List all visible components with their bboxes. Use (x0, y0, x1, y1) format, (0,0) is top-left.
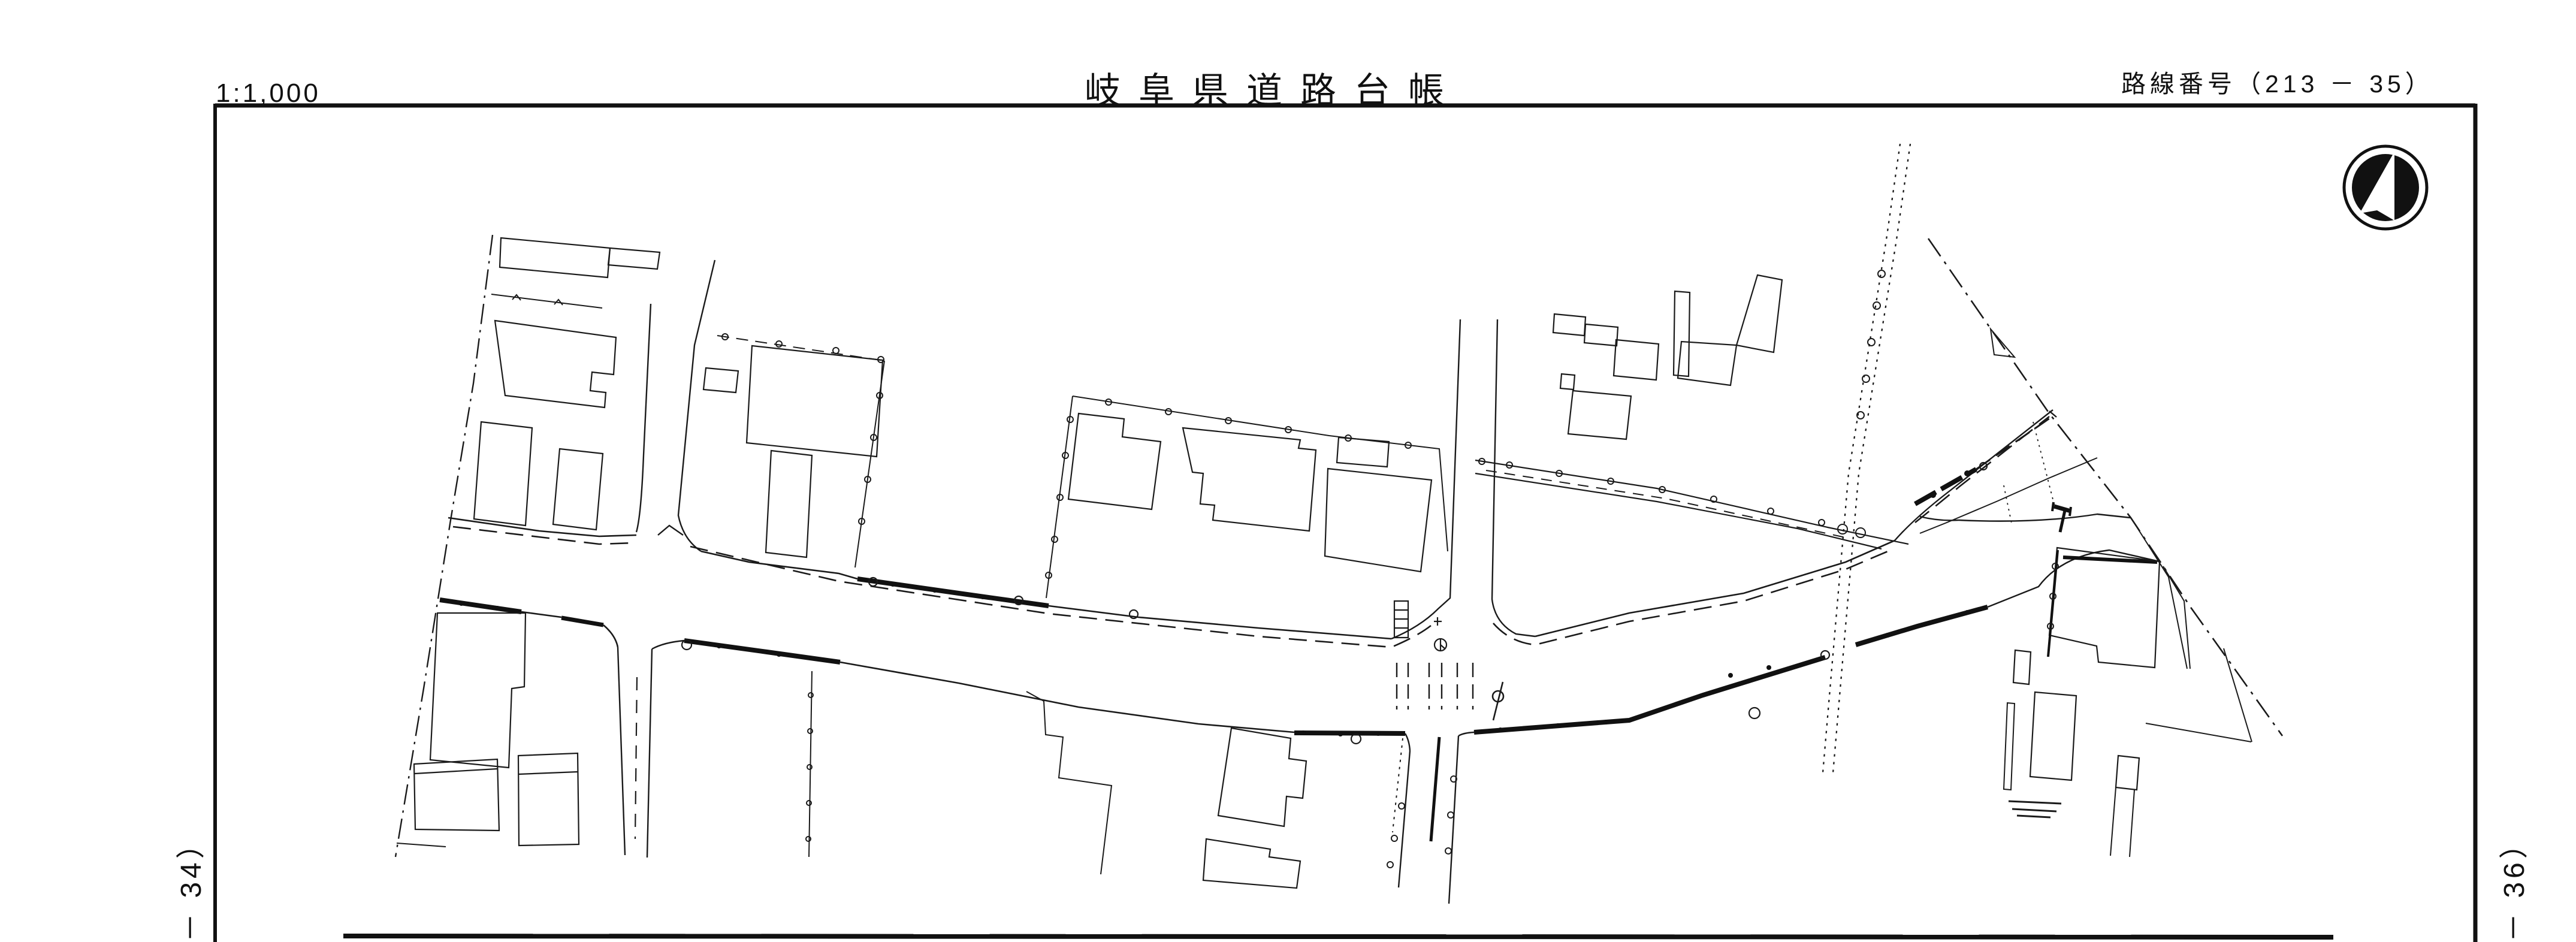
svg-text:－ 34）: － 34） (176, 826, 207, 942)
svg-text:－ 36）: － 36） (2499, 826, 2530, 942)
svg-text:路線番号（213 － 35）: 路線番号（213 － 35） (2121, 70, 2434, 98)
